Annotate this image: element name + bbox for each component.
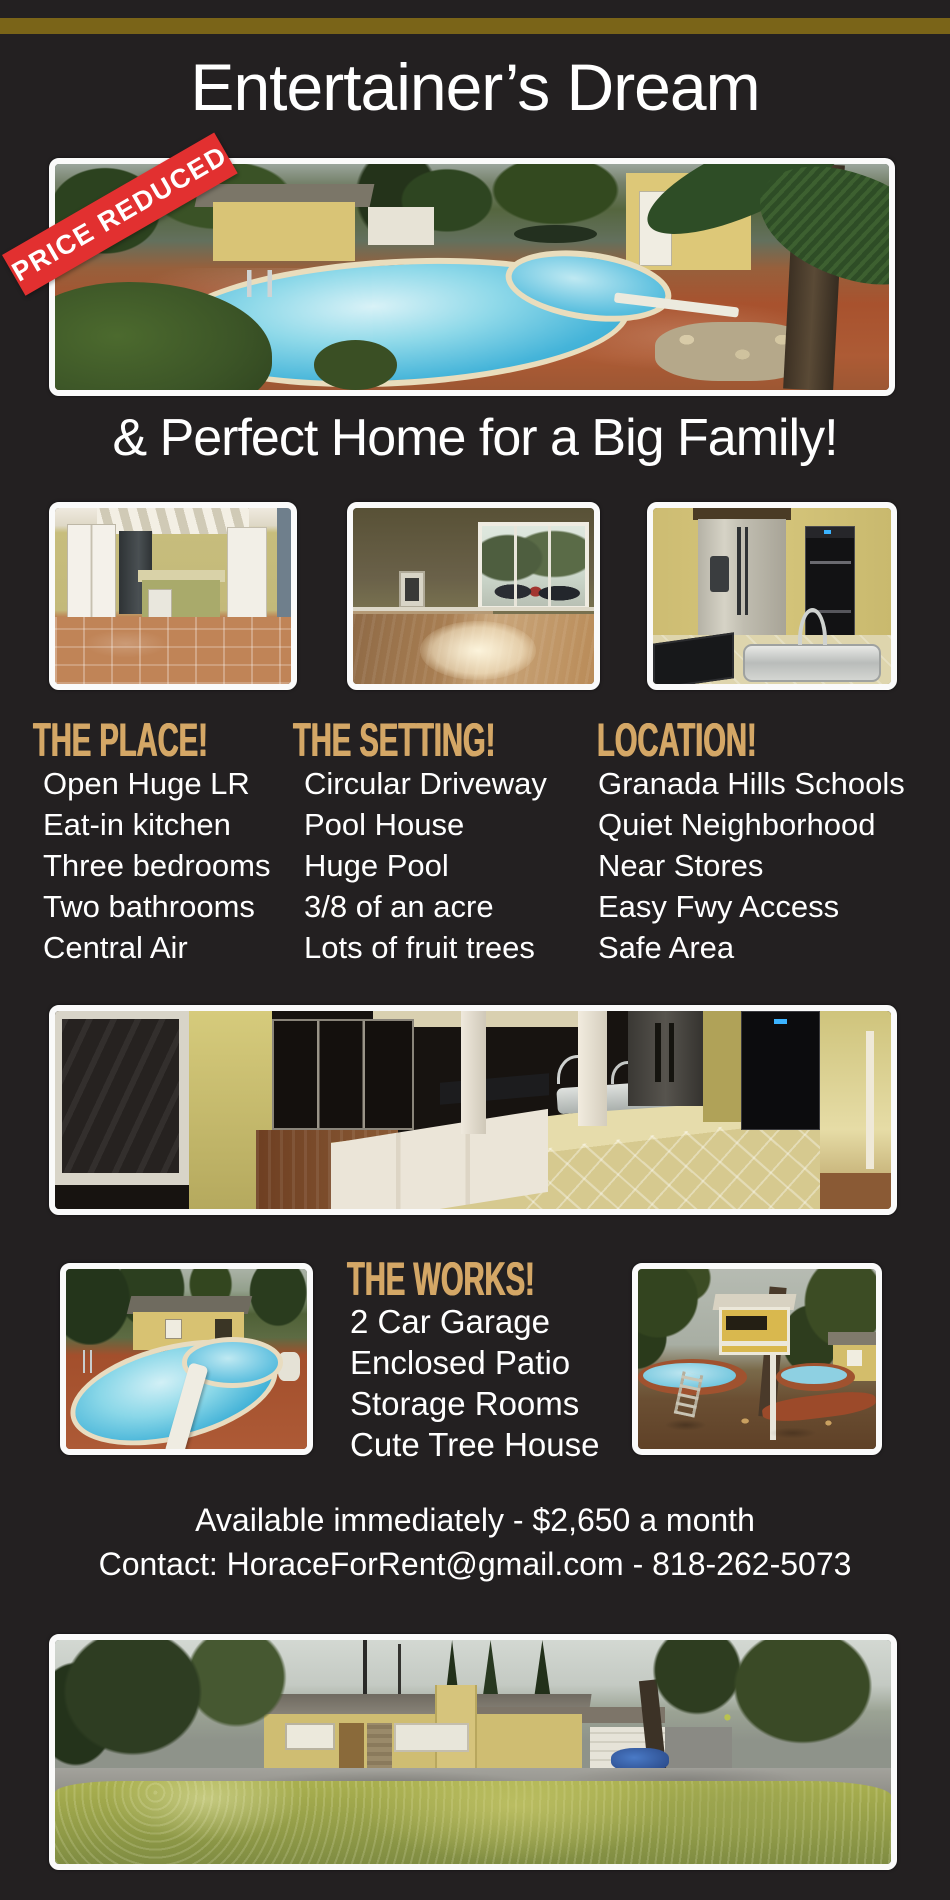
flyer-title: Entertainer’s Dream (0, 49, 950, 125)
feature-item: Lots of fruit trees (304, 927, 547, 968)
tree-house-body (719, 1307, 790, 1356)
photo-illustration (653, 508, 891, 684)
photo-kitchen-panorama (49, 1005, 897, 1215)
fridge-handle (655, 1023, 661, 1082)
pool-house-window (165, 1319, 182, 1339)
feature-list-location: Granada Hills Schools Quiet Neighborhood… (598, 763, 905, 968)
wood-floor (820, 1173, 891, 1209)
pantry-door (227, 527, 267, 627)
feature-item: Storage Rooms (350, 1383, 599, 1424)
feature-item: Two bathrooms (43, 886, 270, 927)
section-heading-text: THE PLACE! (33, 716, 208, 763)
section-heading-the-works: THE WORKS! (347, 1255, 650, 1302)
oven-display (824, 530, 831, 534)
back-house-roof (828, 1332, 876, 1345)
tree-mass-left (55, 1640, 314, 1788)
feature-item: Open Huge LR (43, 763, 270, 804)
feature-item: Quiet Neighborhood (598, 804, 905, 845)
feature-item: Safe Area (598, 927, 905, 968)
fridge-handle (745, 527, 749, 615)
flyer-subtitle: & Perfect Home for a Big Family! (0, 408, 950, 468)
feature-item: Pool House (304, 804, 547, 845)
photo-illustration (55, 1640, 891, 1864)
feature-item: Easy Fwy Access (598, 886, 905, 927)
photo-tree-house (632, 1263, 882, 1455)
feature-item: Near Stores (598, 845, 905, 886)
photo-illustration (638, 1269, 876, 1449)
tile-floor (55, 617, 291, 684)
stove-top (440, 1074, 549, 1105)
refrigerator (628, 1011, 703, 1106)
pool-house-window (215, 1319, 232, 1339)
feature-item: Three bedrooms (43, 845, 270, 886)
ground-mottle (638, 1409, 876, 1449)
window (478, 522, 589, 610)
water-dispenser (710, 556, 729, 593)
photo-eat-in-kitchen (49, 502, 297, 690)
feature-list-the-setting: Circular Driveway Pool House Huge Pool 3… (304, 763, 547, 968)
feature-item: Central Air (43, 927, 270, 968)
contact-line: Contact: HoraceForRent@gmail.com - 818-2… (0, 1542, 950, 1586)
door-frame (866, 1031, 874, 1170)
photo-front-of-house (49, 1634, 897, 1870)
photo-kitchen-appliances (647, 502, 897, 690)
rental-flyer: Entertainer’s Dream PRICE REDUCED & Perf… (0, 0, 950, 1900)
pool-ladder (83, 1350, 93, 1373)
window-left-glass (62, 1019, 179, 1173)
feature-item: Huge Pool (304, 845, 547, 886)
section-heading-the-setting: THE SETTING! (293, 716, 619, 763)
yellow-wall-strip (703, 1011, 741, 1122)
feature-item: 3/8 of an acre (304, 886, 547, 927)
availability-line: Available immediately - $2,650 a month (0, 1498, 950, 1542)
double-oven (741, 1011, 820, 1130)
feature-list-the-place: Open Huge LR Eat-in kitchen Three bedroo… (43, 763, 270, 968)
gold-accent-bar (0, 18, 950, 34)
tree-house-window (726, 1316, 766, 1330)
section-heading-the-place: THE PLACE! (33, 716, 315, 763)
fridge-handle (737, 527, 741, 615)
photo-illustration (66, 1269, 307, 1449)
oven-handle (810, 561, 850, 564)
photo-illustration (55, 508, 291, 684)
sink (743, 644, 881, 683)
section-heading-text: LOCATION! (597, 716, 757, 763)
fireplace-insert (405, 578, 419, 601)
photo-living-room (347, 502, 600, 690)
photo-illustration (353, 508, 594, 684)
house-left (213, 202, 355, 261)
utility-pole (398, 1644, 401, 1698)
pool-ladder (247, 270, 272, 297)
photo-pool-diving-board (60, 1263, 313, 1455)
feature-item: 2 Car Garage (350, 1301, 599, 1342)
glass-doors (272, 1019, 414, 1130)
stone-facade (367, 1723, 392, 1770)
oven-display (774, 1019, 787, 1024)
feature-item: Eat-in kitchen (43, 804, 270, 845)
hedge (55, 1781, 891, 1864)
front-door (339, 1723, 364, 1768)
sunlight-patch (420, 621, 536, 681)
fridge-handle (669, 1023, 675, 1082)
picture-window (394, 1723, 469, 1752)
trampoline (514, 225, 597, 243)
photo-illustration (55, 1011, 891, 1209)
section-heading-text: THE SETTING! (293, 716, 495, 763)
utility-pole (363, 1640, 367, 1698)
feature-item: Granada Hills Schools (598, 763, 905, 804)
shed (368, 207, 435, 245)
back-house-window (847, 1350, 861, 1366)
section-heading-text: THE WORKS! (347, 1255, 535, 1302)
column (578, 1011, 606, 1126)
feature-list-the-works: 2 Car Garage Enclosed Patio Storage Room… (350, 1301, 599, 1465)
bush-small (314, 340, 397, 390)
column (461, 1011, 486, 1134)
section-heading-location: LOCATION! (597, 716, 855, 763)
contact-block: Available immediately - $2,650 a month C… (0, 1498, 950, 1586)
tree-house-trim (719, 1341, 790, 1346)
feature-item: Enclosed Patio (350, 1342, 599, 1383)
feature-item: Cute Tree House (350, 1424, 599, 1465)
feature-item: Circular Driveway (304, 763, 547, 804)
